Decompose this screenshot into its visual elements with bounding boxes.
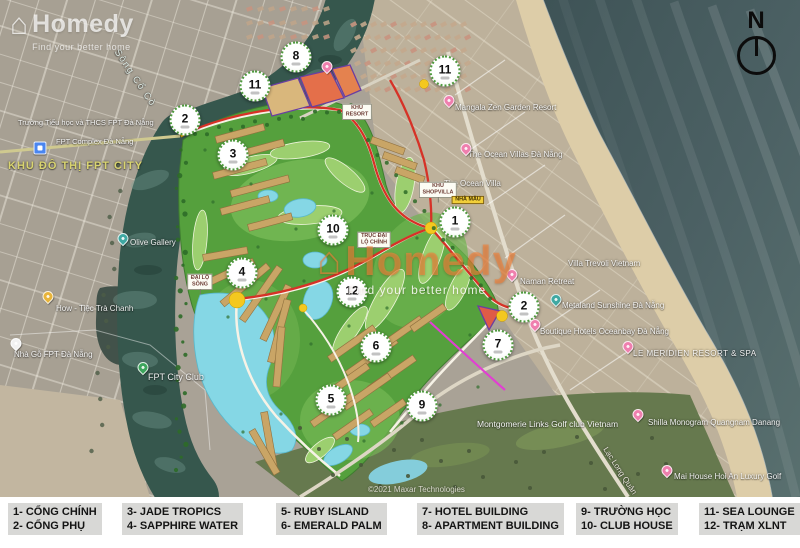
legend-item: 8- APARTMENT BUILDING [422,519,559,533]
house-icon: ⌂ [317,242,341,280]
compass: N [733,8,779,75]
legend-item: 3- JADE TROPICS [127,505,238,519]
legend: 1- CỔNG CHÍNH2- CỔNG PHỤ3- JADE TROPICS4… [0,497,800,548]
legend-item: 10- CLUB HOUSE [581,519,673,533]
legend-item: 7- HOTEL BUILDING [422,505,559,519]
brand-tagline: Find your better home [32,42,131,52]
satellite-map: 238111111041226759Sông Cổ CòTrường Tiểu … [0,0,800,497]
legend-item: 1- CỔNG CHÍNH [13,505,97,519]
brand-watermark-corner: ⌂ Homedy Find your better home [10,12,134,55]
house-icon: ⌂ [10,12,28,38]
legend-item: 9- TRƯỜNG HỌC [581,505,673,519]
legend-item: 2- CỔNG PHỤ [13,519,97,533]
compass-icon [737,36,776,75]
legend-group: 7- HOTEL BUILDING8- APARTMENT BUILDING [417,503,564,535]
map-screenshot: 238111111041226759Sông Cổ CòTrường Tiểu … [0,0,800,548]
legend-group: 9- TRƯỜNG HỌC10- CLUB HOUSE [576,503,678,535]
legend-group: 5- RUBY ISLAND6- EMERALD PALM [276,503,387,535]
legend-group: 3- JADE TROPICS4- SAPPHIRE WATER [122,503,243,535]
legend-item: 4- SAPPHIRE WATER [127,519,238,533]
brand-watermark-center: ⌂ Homedy Find your better home [302,240,532,297]
legend-group: 1- CỔNG CHÍNH2- CỔNG PHỤ [8,503,102,535]
imagery-credit: ©2021 Maxar Technologies [368,485,465,494]
brand-tagline: Find your better home [302,283,532,297]
legend-item: 5- RUBY ISLAND [281,505,382,519]
legend-item: 11- SEA LOUNGE [704,505,795,519]
legend-item: 6- EMERALD PALM [281,519,382,533]
legend-group: 11- SEA LOUNGE12- TRẠM XLNT [699,503,800,535]
legend-item: 12- TRẠM XLNT [704,519,795,533]
compass-north-label: N [733,8,779,34]
brand-name: Homedy [345,240,517,282]
brand-name: Homedy [32,10,134,38]
